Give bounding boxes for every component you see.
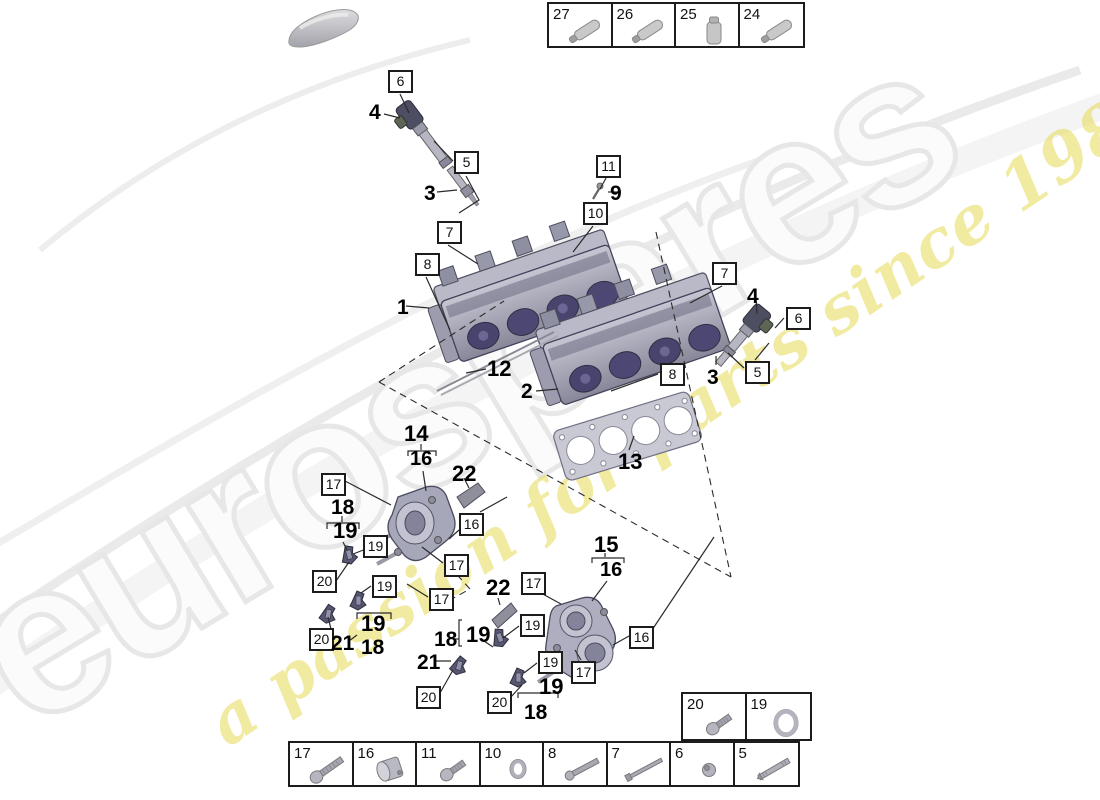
callout-box-17[interactable]: 17	[444, 554, 469, 577]
part-label-22: 22	[486, 577, 510, 599]
part-label-9: 9	[610, 183, 622, 204]
part-label-19: 19	[333, 520, 357, 542]
callout-box-11[interactable]: 11	[596, 155, 621, 178]
sealing-plate-22a	[457, 483, 485, 508]
callout-box-8[interactable]: 8	[660, 363, 685, 386]
o-ring-large-icon	[763, 707, 809, 739]
legend-item-24[interactable]: 24	[740, 4, 804, 46]
part-label-19: 19	[539, 676, 563, 698]
part-label-19: 19	[361, 613, 385, 635]
part-label-22: 22	[452, 463, 476, 485]
part-label-15: 15	[594, 534, 618, 556]
legend-item-number: 6	[675, 745, 683, 762]
callout-box-6[interactable]: 6	[786, 307, 811, 330]
part-label-2: 2	[521, 381, 533, 402]
legend-item-8[interactable]: 8	[544, 743, 608, 785]
part-label-19: 19	[466, 624, 490, 646]
callout-box-8[interactable]: 8	[415, 253, 440, 276]
long-bolt-icon	[559, 753, 605, 785]
callout-box-19[interactable]: 19	[372, 575, 397, 598]
part-label-18: 18	[361, 637, 384, 658]
part-label-18: 18	[434, 629, 457, 650]
seal-ring-small-icon	[495, 753, 541, 785]
legend-item-6[interactable]: 6	[671, 743, 735, 785]
legend-item-17[interactable]: 17	[290, 743, 354, 785]
legend-top-consumables: 27262524	[547, 2, 805, 48]
fluid-bottle-icon	[691, 14, 737, 46]
legend-item-16[interactable]: 16	[354, 743, 418, 785]
legend-item-10[interactable]: 10	[481, 743, 545, 785]
callout-box-17[interactable]: 17	[321, 473, 346, 496]
callout-box-20[interactable]: 20	[312, 570, 337, 593]
part-label-4: 4	[747, 286, 759, 307]
car-silhouette	[289, 10, 359, 47]
part-label-3: 3	[424, 183, 436, 204]
part-label-13: 13	[618, 451, 642, 473]
legend-item-number: 8	[548, 745, 556, 762]
legend-item-5[interactable]: 5	[735, 743, 799, 785]
callout-box-20[interactable]: 20	[487, 691, 512, 714]
legend-item-11[interactable]: 11	[417, 743, 481, 785]
legend-item-27[interactable]: 27	[549, 4, 613, 46]
callout-box-10[interactable]: 10	[583, 202, 608, 225]
diagram-canvas: eurospares a passion for parts since 198…	[0, 0, 1100, 800]
callout-box-6[interactable]: 6	[388, 70, 413, 93]
callout-box-7[interactable]: 7	[712, 262, 737, 285]
callout-box-19[interactable]: 19	[520, 614, 545, 637]
long-stud-icon	[622, 753, 668, 785]
pan-screw-icon	[432, 753, 478, 785]
legend-item-number: 5	[739, 745, 747, 762]
part-label-1: 1	[397, 297, 409, 318]
pan-screw-long-icon	[305, 753, 351, 785]
callout-box-19[interactable]: 19	[538, 651, 563, 674]
callout-box-16[interactable]: 16	[459, 513, 484, 536]
legend-item-7[interactable]: 7	[608, 743, 672, 785]
callout-box-5[interactable]: 5	[745, 361, 770, 384]
part-label-21: 21	[331, 633, 354, 654]
cap-plug-icon	[368, 753, 414, 785]
legend-item-number: 7	[612, 745, 620, 762]
part-label-16: 16	[410, 449, 432, 469]
sealing-plate-22b	[492, 603, 517, 628]
legend-item-20[interactable]: 20	[683, 694, 747, 739]
callout-box-7[interactable]: 7	[437, 221, 462, 244]
part-label-12: 12	[487, 358, 511, 380]
part-label-18: 18	[331, 497, 354, 518]
pan-screw-icon	[698, 707, 744, 739]
callout-box-5[interactable]: 5	[454, 151, 479, 174]
sealant-tube-icon	[627, 14, 673, 46]
part-label-4: 4	[369, 102, 381, 123]
part-label-16: 16	[600, 560, 622, 580]
callout-box-17[interactable]: 17	[429, 588, 454, 611]
legend-bottom-fasteners: 171611108765	[288, 741, 800, 787]
part-label-18: 18	[524, 702, 547, 723]
callout-box-17[interactable]: 17	[521, 572, 546, 595]
stud-bolt-icon	[751, 753, 797, 785]
legend-side-fasteners: 2019	[681, 692, 812, 741]
legend-item-26[interactable]: 26	[613, 4, 677, 46]
sealant-tube-icon	[756, 14, 802, 46]
callout-box-20[interactable]: 20	[416, 686, 441, 709]
part-label-21: 21	[417, 652, 440, 673]
small-plug-icon	[686, 753, 732, 785]
callout-box-16[interactable]: 16	[629, 626, 654, 649]
part-label-14: 14	[404, 423, 428, 445]
callout-box-17[interactable]: 17	[571, 661, 596, 684]
legend-item-19[interactable]: 19	[747, 694, 811, 739]
part-label-3: 3	[707, 367, 719, 388]
callout-box-19[interactable]: 19	[363, 535, 388, 558]
sealant-tube-icon	[564, 14, 610, 46]
legend-item-25[interactable]: 25	[676, 4, 740, 46]
